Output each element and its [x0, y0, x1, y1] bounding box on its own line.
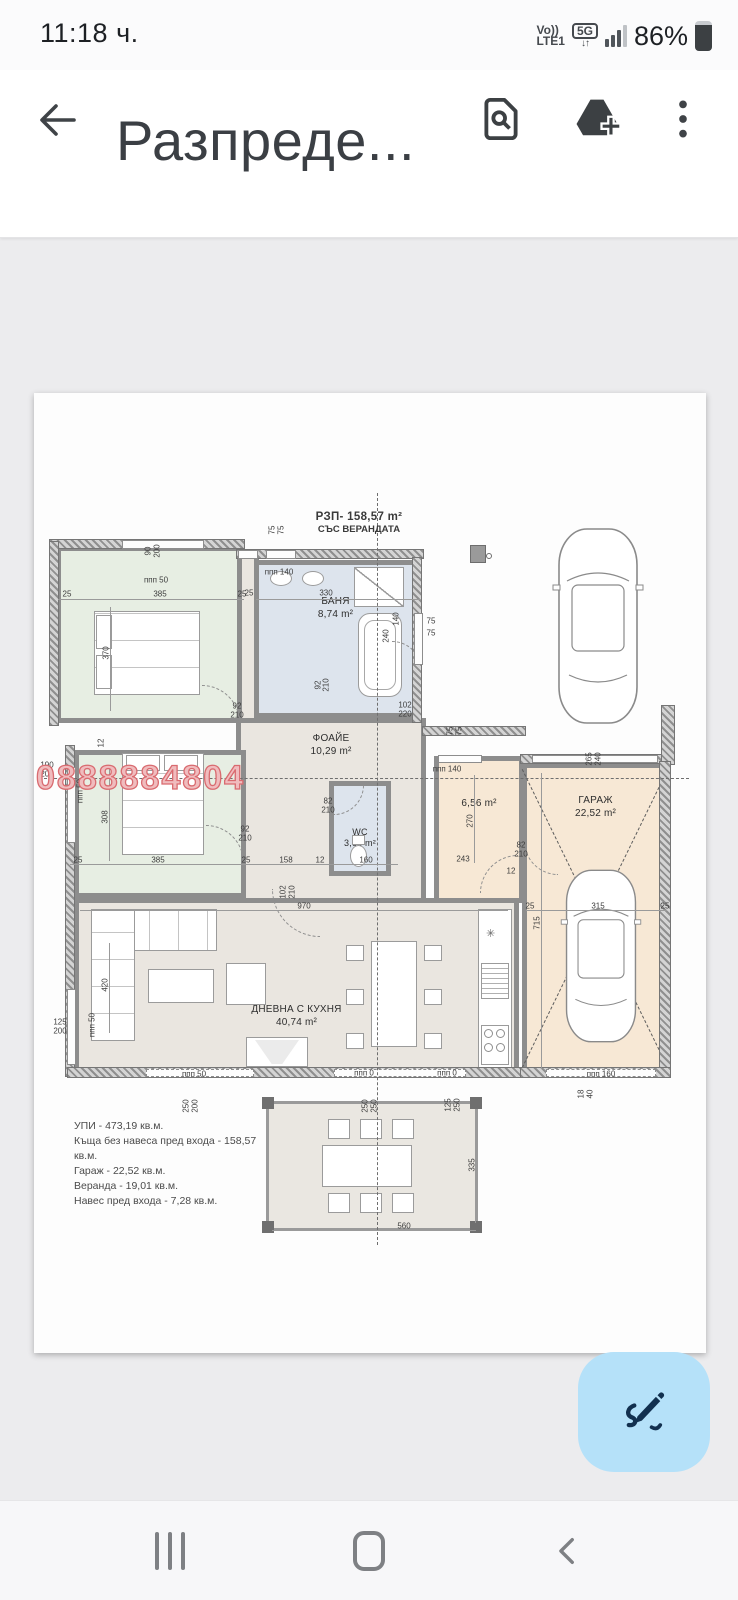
dim-label: 210: [288, 885, 297, 898]
dim-label: 75: [427, 617, 436, 626]
armchair: [226, 963, 266, 1005]
document-viewer[interactable]: РЗП- 158,57 m² СЪС ВЕРАНДАТА: [0, 238, 738, 1500]
dim-label: 12: [507, 867, 516, 876]
hob-symbol: ✳: [486, 927, 495, 940]
recents-icon: [155, 1532, 185, 1570]
find-in-document-icon: [474, 92, 528, 146]
dim-label: 12: [97, 739, 106, 748]
sink: [302, 571, 324, 586]
dim-label: 210: [322, 678, 331, 691]
annotate-button[interactable]: [578, 1352, 710, 1472]
dim-label: ппп 0: [437, 1069, 457, 1078]
more-options-button[interactable]: [656, 92, 710, 146]
dim-label: ппп 140: [265, 568, 294, 577]
dim-label: 25: [242, 856, 251, 865]
plan-title: РЗП- 158,57 m² СЪС ВЕРАНДАТА: [274, 511, 444, 535]
back-button[interactable]: [34, 96, 82, 144]
dim-label: ппп 0: [354, 1069, 374, 1078]
dim-label: 265: [585, 752, 594, 765]
dim-label: 308: [101, 810, 110, 823]
dim-label: 715: [533, 916, 542, 929]
dim-label: 140: [392, 612, 401, 625]
centerline: [377, 493, 378, 1245]
sofa: [91, 909, 135, 1041]
dim-label: 158: [279, 856, 292, 865]
dim-label: 25: [63, 590, 72, 599]
dim-label: 200: [153, 544, 162, 557]
dim-label: 12: [316, 856, 325, 865]
fireplace: [246, 1037, 308, 1067]
dim-label: 25: [245, 589, 254, 598]
dim-label: 970: [297, 902, 310, 911]
dim-label: 90: [144, 547, 153, 556]
dim-label: 82: [517, 841, 526, 850]
battery-icon: [695, 21, 712, 51]
dim-label: 330: [319, 589, 332, 598]
dim-label: 75: [446, 727, 455, 736]
home-icon: [353, 1531, 385, 1571]
dim-label: 18: [577, 1090, 586, 1099]
back-arrow-icon: [34, 96, 82, 144]
dim-label: 102: [279, 885, 288, 898]
dim-label: 125: [53, 1018, 66, 1027]
coffee-table: [148, 969, 214, 1003]
dim-label: 25: [661, 902, 670, 911]
dim-label: 220: [398, 710, 411, 719]
dim-label: 250: [453, 1098, 462, 1111]
dim-label: 385: [151, 856, 164, 865]
app-header: Разпреде...: [0, 70, 738, 238]
dim-label: 270: [466, 814, 475, 827]
dim-label: 25: [526, 902, 535, 911]
dim-label: 250: [370, 1099, 379, 1112]
dim-label: 240: [382, 629, 391, 642]
dim-label: 92: [241, 825, 250, 834]
area-summary: УПИ - 473,19 кв.м. Къща без навеса пред …: [74, 1119, 274, 1208]
dim-label: 160: [359, 856, 372, 865]
clock: 11:18 ч.: [40, 18, 139, 49]
dim-label: 40: [586, 1090, 595, 1099]
home-button[interactable]: [339, 1521, 399, 1581]
annotate-pen-icon: [618, 1386, 670, 1438]
dim-label: ппп 50: [182, 1070, 206, 1079]
dim-label: 25: [74, 856, 83, 865]
shower: [354, 567, 404, 607]
dim-label: 385: [153, 590, 166, 599]
dim-label: 335: [468, 1158, 477, 1171]
network-5g-icon: 5G ↓↑: [572, 23, 598, 49]
back-nav-button[interactable]: [538, 1521, 598, 1581]
dim-label: 250: [182, 1099, 191, 1112]
dim-label: 210: [321, 806, 334, 815]
document-title: Разпреде...: [116, 108, 415, 173]
dim-label: 420: [101, 978, 110, 991]
dim-label: 82: [324, 797, 333, 806]
dim-label: 92: [233, 702, 242, 711]
dim-label: 210: [238, 834, 251, 843]
dim-label: 102: [398, 701, 411, 710]
dim-label: ппп 50: [144, 576, 168, 585]
phone-screen: 11:18 ч. Vo)) LTE1 5G ↓↑ 86% Разпреде...: [0, 0, 738, 1600]
dim-label: 370: [102, 646, 111, 659]
dim-label: 200: [53, 1027, 66, 1036]
google-drive-add-icon: [570, 92, 624, 146]
dim-label: 125: [444, 1098, 453, 1111]
car-icon: [552, 523, 644, 729]
legend-stamp: [470, 545, 486, 563]
dim-label: 210: [514, 850, 527, 859]
car-icon: [555, 865, 647, 1047]
dim-label: 75: [427, 629, 436, 638]
three-dot-menu-icon: [656, 92, 710, 146]
floor-plan: РЗП- 158,57 m² СЪС ВЕРАНДАТА: [34, 393, 706, 1353]
dim-label: ппп 50: [88, 1013, 97, 1037]
dim-label: ппп 140: [433, 765, 462, 774]
signal-strength-icon: [605, 25, 627, 47]
dim-label: 243: [456, 855, 469, 864]
battery-percent: 86%: [634, 21, 688, 52]
dim-label: 250: [361, 1099, 370, 1112]
dim-label: 75: [455, 727, 464, 736]
find-in-document-button[interactable]: [474, 92, 528, 146]
fridge: [481, 963, 509, 999]
navigation-bar: [0, 1500, 738, 1600]
phone-watermark: 0888884804: [36, 759, 245, 798]
status-bar: 11:18 ч. Vo)) LTE1 5G ↓↑ 86%: [0, 0, 738, 70]
dim-label: 240: [594, 752, 603, 765]
dim-label: ппп 160: [587, 1070, 616, 1079]
dim-label: 200: [191, 1099, 200, 1112]
plan-page: РЗП- 158,57 m² СЪС ВЕРАНДАТА: [34, 393, 706, 1353]
volte-indicator: Vo)) LTE1: [536, 25, 564, 47]
back-chevron-icon: [551, 1531, 585, 1571]
add-to-drive-button[interactable]: [570, 92, 624, 146]
dim-label: 210: [230, 711, 243, 720]
dim-label: 315: [591, 902, 604, 911]
dim-label: 560: [397, 1222, 410, 1231]
veranda-table: [322, 1145, 412, 1187]
recents-button[interactable]: [140, 1521, 200, 1581]
